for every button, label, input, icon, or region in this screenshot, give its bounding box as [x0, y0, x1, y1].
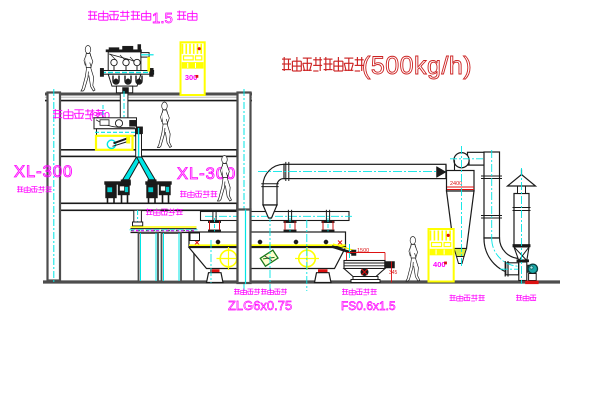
- svg-text:1500: 1500: [357, 248, 369, 254]
- svg-text:300: 300: [185, 73, 198, 82]
- svg-text:400: 400: [433, 260, 446, 269]
- svg-text:1.5: 1.5: [152, 10, 173, 27]
- svg-text:2400: 2400: [450, 181, 462, 187]
- svg-text:FS0.6x1.5: FS0.6x1.5: [341, 299, 396, 313]
- svg-text:XL-300: XL-300: [14, 163, 73, 181]
- svg-text:345: 345: [389, 270, 398, 276]
- svg-text:ZLG6x0.75: ZLG6x0.75: [228, 298, 292, 313]
- svg-text:(500kg/h): (500kg/h): [362, 52, 472, 80]
